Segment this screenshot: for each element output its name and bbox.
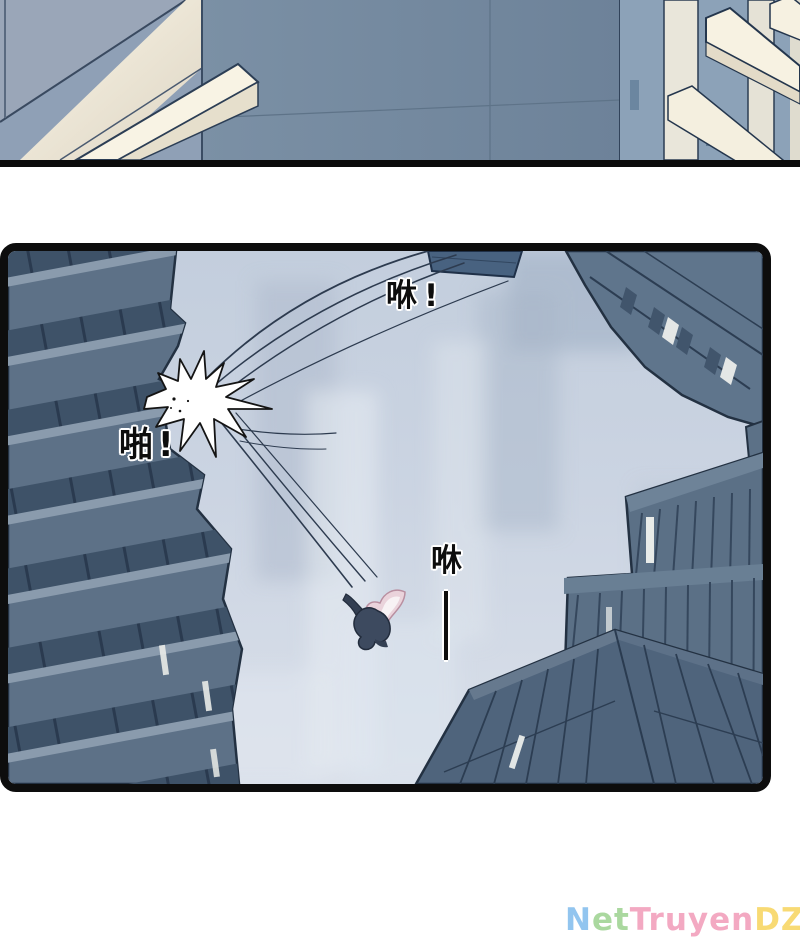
sfx-impact: 啪!: [119, 428, 179, 462]
top-right-facade: [620, 0, 800, 167]
watermark-nettruyendz: NetTruyenDZ: [565, 902, 800, 938]
sfx-trail-line: [444, 591, 448, 660]
watermark-part-truyen: Truyen: [630, 902, 754, 938]
main-cityscape-art: [8, 251, 763, 784]
watermark-part-n: N: [565, 902, 592, 938]
sfx-whoosh-top: 咻!: [386, 281, 445, 312]
watermark-part-et: et: [592, 902, 630, 938]
sfx-whoosh-falling: 咻: [431, 546, 462, 577]
top-center-slab: [202, 0, 620, 160]
watermark-part-dz: DZ: [754, 902, 800, 938]
panel-top: [0, 0, 800, 167]
top-cityscape-art: [0, 0, 800, 167]
top-panel-bottom-border: [0, 160, 800, 167]
panel-main: 咻! 啪! 咻: [0, 243, 771, 792]
comic-page: 咻! 啪! 咻 NetTruyenDZ: [0, 0, 800, 950]
